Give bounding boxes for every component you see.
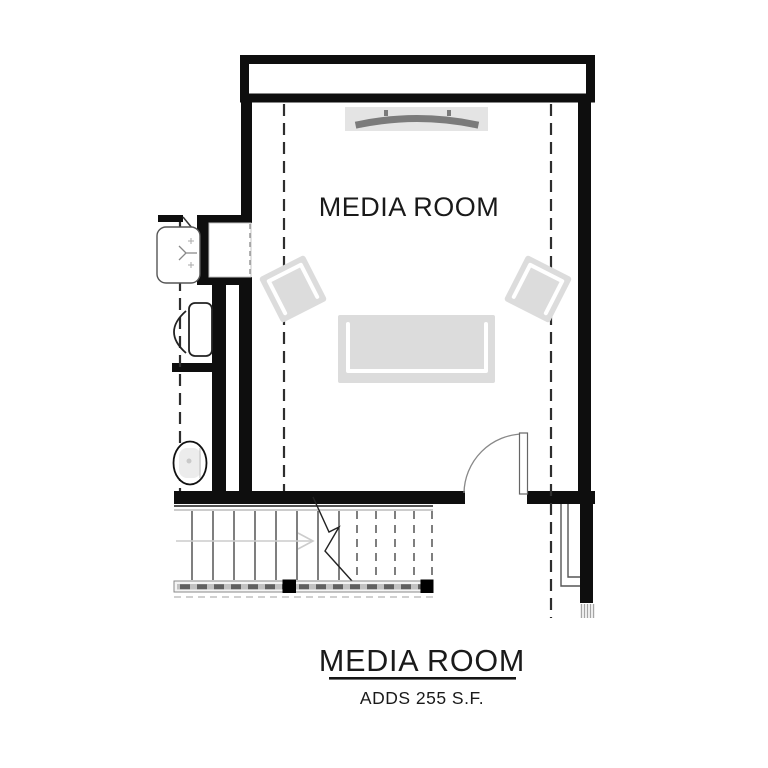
bottom-wall-right	[527, 491, 595, 504]
newel-post	[421, 580, 434, 594]
plan-subtitle: ADDS 255 S.F.	[360, 688, 484, 708]
stair-direction-arrow	[176, 533, 313, 549]
armchair-left-symbol	[259, 255, 328, 324]
floor-plan-svg: MEDIA ROOM MEDIA ROOM ADDS 255 S.F.	[0, 0, 768, 768]
furniture	[259, 107, 573, 383]
right-wall	[578, 94, 591, 491]
door-leaf	[520, 433, 528, 494]
room-label: MEDIA ROOM	[319, 192, 500, 222]
tv-symbol	[345, 107, 488, 131]
door-swing-symbol	[464, 433, 528, 494]
hatch-block	[582, 604, 594, 618]
closet-bottom-wall	[197, 277, 252, 285]
title-underline	[329, 677, 516, 680]
bottom-wall-left	[174, 491, 465, 504]
stair-treads-solid	[192, 511, 339, 580]
door-arc	[464, 434, 523, 493]
floor-plan-page: MEDIA ROOM MEDIA ROOM ADDS 255 S.F.	[0, 0, 768, 768]
top-wall-band	[245, 60, 591, 99]
plan-title: MEDIA ROOM	[319, 644, 525, 678]
title-block: MEDIA ROOM ADDS 255 S.F.	[319, 644, 525, 708]
closet-niche	[209, 223, 251, 277]
armchair-right-symbol	[504, 255, 573, 324]
chase-wall-left	[212, 285, 226, 491]
water-closet-symbol	[174, 442, 207, 485]
right-wall-lower	[580, 504, 593, 603]
stairs-symbol	[174, 497, 434, 597]
sofa-symbol	[338, 315, 495, 383]
newel-post	[283, 580, 297, 594]
bath-top-wall	[158, 215, 183, 222]
chase-wall-right	[239, 285, 252, 491]
sink-symbol	[157, 227, 200, 283]
closet-interior	[209, 223, 251, 277]
left-wall-upper	[241, 94, 252, 217]
toilet-symbol	[174, 303, 212, 356]
handrail-symbol	[174, 580, 434, 594]
